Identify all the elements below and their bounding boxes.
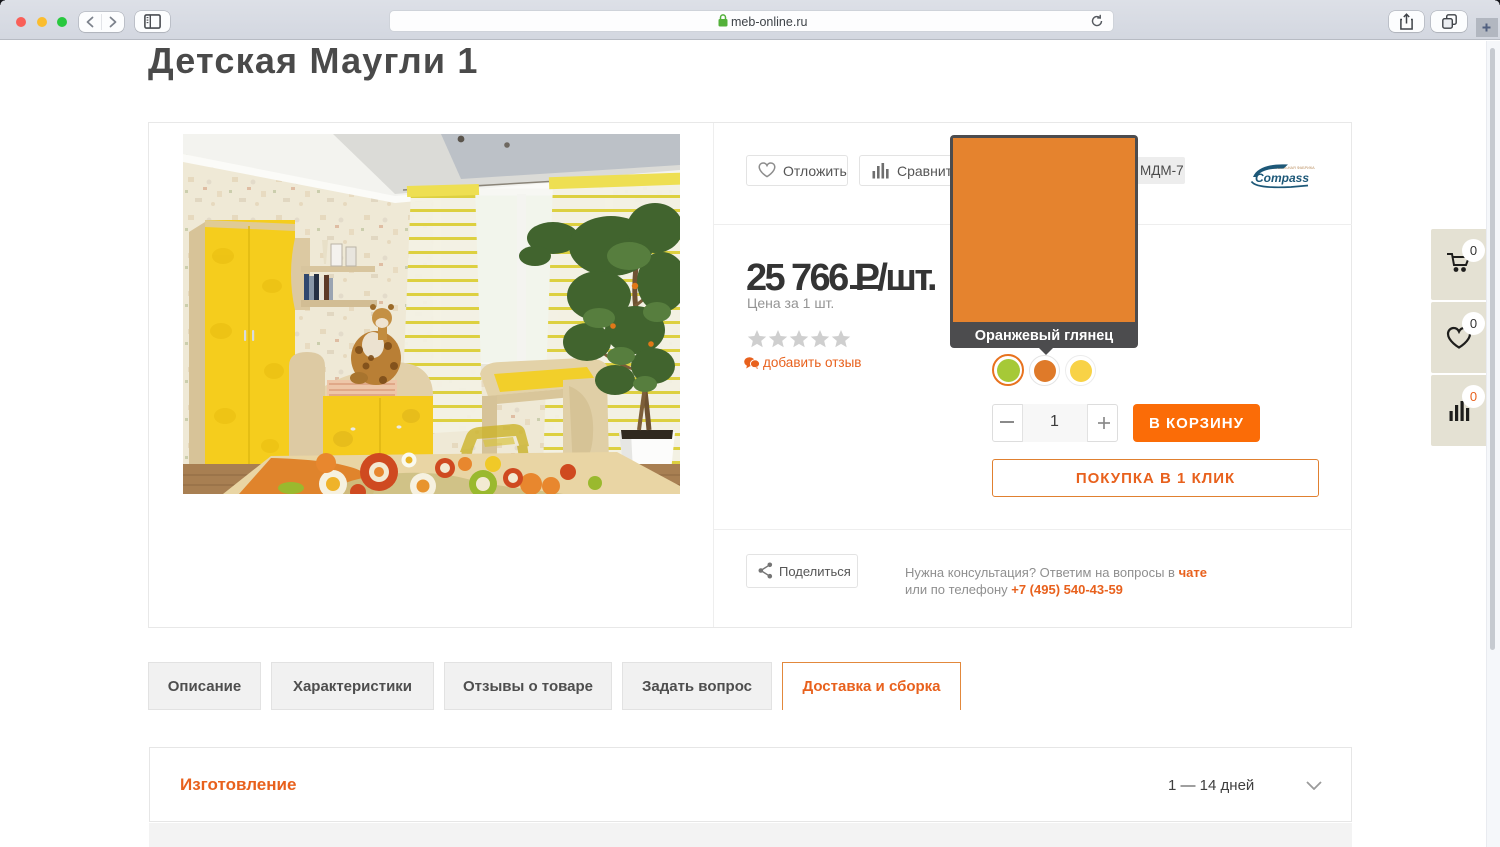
svg-text:Compass: Compass	[1255, 171, 1309, 185]
